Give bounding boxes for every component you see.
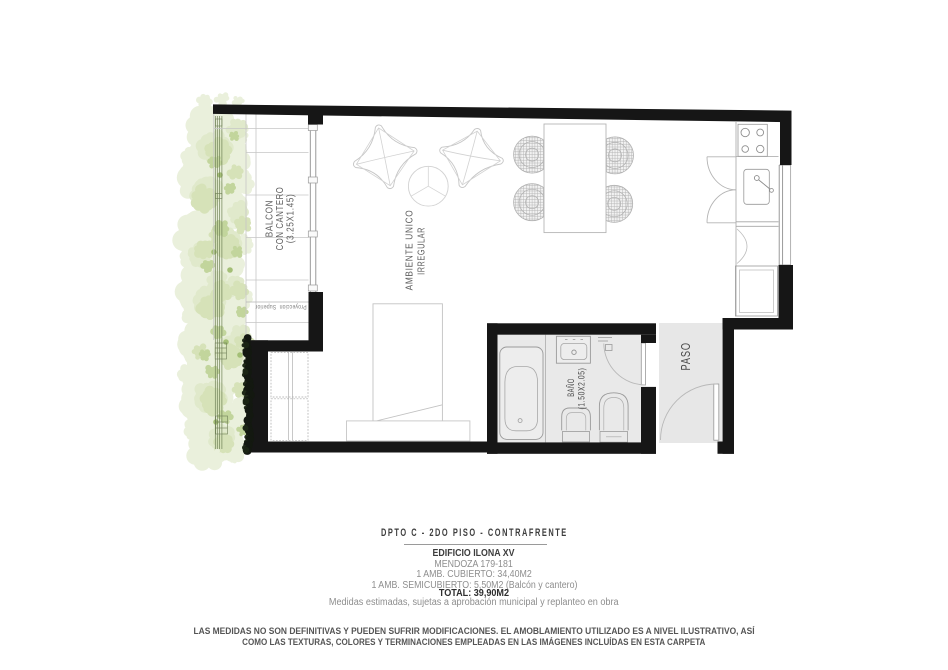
- svg-text:(3.25X1.45): (3.25X1.45): [283, 194, 295, 244]
- svg-text:BALCON: BALCON: [262, 200, 274, 237]
- svg-text:AMBIENTE UNICO: AMBIENTE UNICO: [404, 210, 415, 291]
- svg-text:BAÑO: BAÑO: [566, 378, 577, 397]
- svg-text:PASO: PASO: [680, 342, 694, 370]
- svg-text:IRREGULAR: IRREGULAR: [415, 227, 426, 275]
- svg-text:Proyeccion Superior: Proyeccion Superior: [255, 303, 306, 310]
- svg-text:(1.50X2.05): (1.50X2.05): [577, 368, 587, 410]
